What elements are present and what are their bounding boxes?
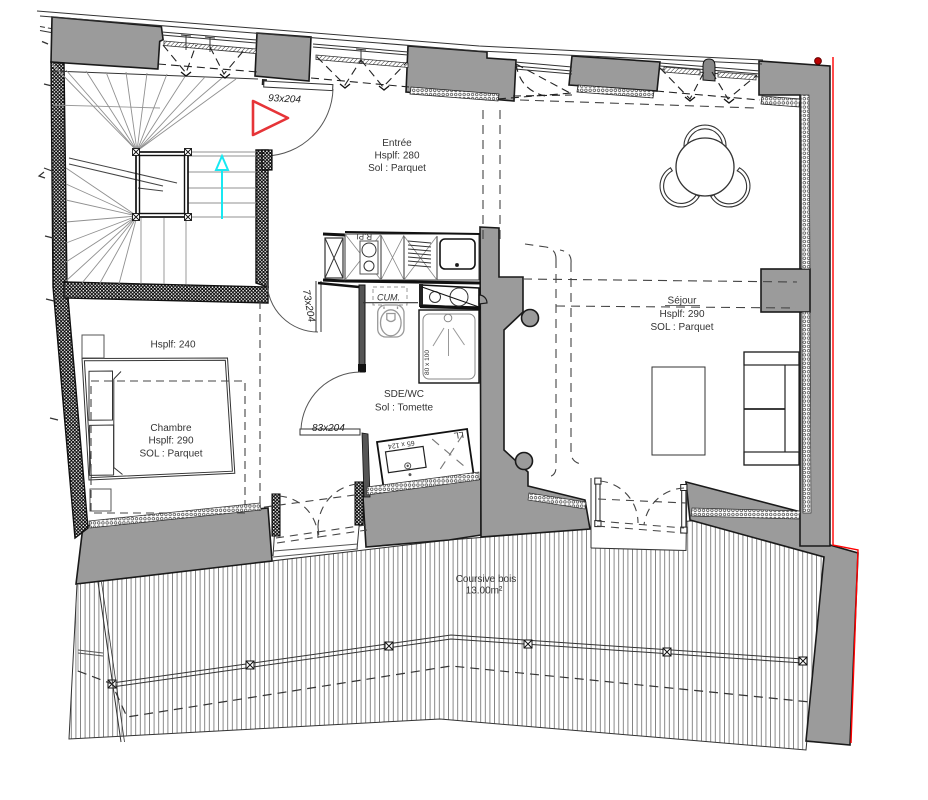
svg-text:Sol : Parquet: Sol : Parquet (368, 163, 426, 174)
svg-text:Chambre: Chambre (150, 423, 192, 434)
svg-text:Hsplf: 240: Hsplf: 240 (150, 340, 195, 351)
svg-text:Hsplf: 290: Hsplf: 290 (659, 309, 704, 320)
svg-text:SDE/WC: SDE/WC (384, 389, 424, 400)
svg-text:93x204: 93x204 (268, 93, 302, 106)
svg-text:SOL : Parquet: SOL : Parquet (140, 449, 203, 460)
svg-text:83x204: 83x204 (312, 423, 345, 434)
svg-text:LL: LL (453, 430, 464, 441)
svg-text:Séjour: Séjour (668, 296, 698, 307)
svg-text:Coursive bois: Coursive bois (456, 574, 517, 585)
svg-text:80 x 100: 80 x 100 (424, 350, 431, 375)
svg-text:SOL : Parquet: SOL : Parquet (651, 322, 714, 333)
svg-text:Sol : Tomette: Sol : Tomette (375, 403, 434, 414)
svg-text:CUM.: CUM. (377, 293, 400, 303)
svg-text:Entrée: Entrée (382, 138, 412, 149)
svg-text:Hsplf: 290: Hsplf: 290 (148, 436, 193, 447)
svg-text:13.00m²: 13.00m² (466, 586, 503, 597)
svg-text:Hsplf: 280: Hsplf: 280 (374, 151, 419, 162)
svg-text:R.PL: R.PL (354, 232, 373, 242)
